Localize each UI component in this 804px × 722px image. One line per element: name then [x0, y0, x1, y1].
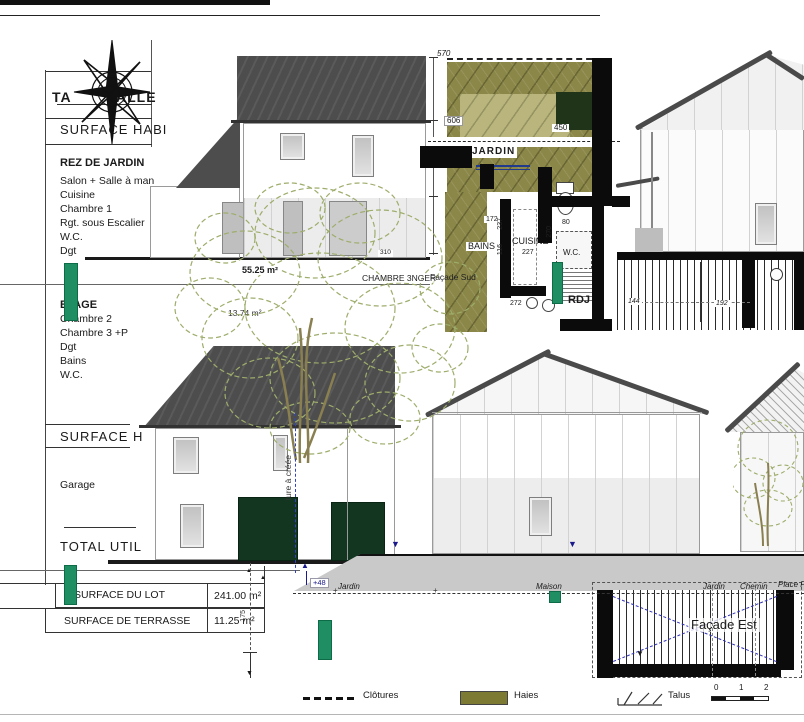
surface-table-row: SURFACE DE TERRASSE 11.25 m² [45, 608, 265, 633]
plan-east-wall [794, 258, 804, 330]
rez-item: Salon + Salle à man [60, 176, 154, 187]
boundary-dashed [712, 588, 713, 676]
legend-talus-icon [616, 689, 664, 707]
dim-dashed-vertical [250, 563, 251, 655]
dim-450: 450 [552, 124, 569, 132]
surface-table-row: SURFACE DU LOT 241.00 m² [55, 583, 265, 608]
facade-est-arrow-line [640, 598, 641, 654]
area-main-label: 55.25 m² [240, 266, 280, 275]
plan-stair-marker [552, 262, 563, 304]
top-rule [0, 15, 600, 16]
section-label-jardin: Jardin [338, 583, 360, 591]
house3-window [529, 497, 552, 536]
door-swing-circle [770, 268, 783, 281]
plan-wall [560, 319, 612, 331]
section-label-chemin: Chemin [740, 583, 768, 591]
legend-clotures-swatch [303, 697, 357, 700]
etage-item: Bains [60, 356, 86, 367]
rez-item: Chambre 1 [60, 204, 112, 215]
dim-227: 227 [520, 249, 536, 256]
dim-80: 80 [560, 219, 572, 226]
garage-label: Garage [60, 480, 95, 491]
dim-arrow: ▲ [246, 568, 252, 574]
legend-haies-label: Haies [514, 691, 538, 701]
marker-bar [64, 565, 77, 605]
plan-wall [552, 196, 592, 207]
plan-wc-label: W.C. [563, 249, 580, 257]
plan-east-wall-top [617, 252, 804, 260]
level-mark-icon: ▼ [391, 540, 400, 549]
section-tick: + [333, 587, 338, 595]
tree-large [150, 178, 485, 468]
total-utile-heading: TOTAL UTIL [60, 540, 142, 554]
house2-window-low [180, 504, 204, 548]
dim-237: 237 [497, 218, 504, 230]
plan-east-dashed [640, 302, 750, 303]
rule [45, 424, 130, 425]
gable-ne-wall [640, 128, 804, 252]
plan-jardin-label: JARDIN [470, 147, 517, 158]
ground-line-lower-thin [0, 570, 300, 571]
house1-roof [237, 56, 426, 122]
facade-est-arrow: ▼ [636, 650, 644, 658]
boundary-dashed [755, 588, 756, 676]
rule [0, 583, 55, 584]
panel-left-border [45, 70, 46, 585]
scale-tick-0: 0 [714, 684, 718, 692]
rule [64, 527, 136, 528]
rez-item: Rgt. sous Escalier [60, 218, 145, 229]
plan-wall [420, 146, 472, 168]
surface-lot-label: SURFACE DU LOT [74, 590, 165, 601]
rule [45, 447, 130, 448]
facade-est-label: Façade Est [688, 618, 760, 632]
plan-wall [612, 196, 630, 207]
dim-foot-arrow: ▼ [246, 670, 253, 677]
architectural-drawing-sheet: TA ALLE SURFACE HABI REZ DE JARDIN Salon… [0, 0, 804, 722]
gable-ne-wall-panel [635, 228, 663, 252]
ouverture-note: ture à créée [283, 455, 293, 500]
section-label-place: Place Par [778, 581, 804, 589]
plan-wall [510, 286, 546, 296]
dim-272: 272 [508, 300, 524, 307]
scale-tick-2: 2 [764, 684, 768, 692]
rez-de-jardin-heading: REZ DE JARDIN [60, 158, 144, 170]
house1-window [280, 133, 305, 160]
marker-bar [318, 620, 332, 660]
surface-lot-value: 241.00 m² [214, 590, 261, 602]
facade-est-wall [597, 590, 613, 678]
house1-window-tall [352, 135, 374, 177]
legend-clotures-label: Clôtures [363, 691, 398, 701]
etage-item: Chambre 3 +P [60, 328, 128, 339]
compass-rose-icon [66, 40, 158, 153]
etage-item: Dgt [60, 342, 76, 353]
plan-garden-light [460, 94, 570, 140]
tree-small [733, 408, 804, 548]
marker-bar [64, 263, 78, 321]
gable-ne-window [755, 203, 777, 245]
dim-175: 175 [240, 610, 247, 622]
dim-310: 310 [378, 250, 393, 257]
dim-606: 606 [444, 116, 463, 126]
section-tick: + [433, 587, 438, 595]
section-label-jardin2: Jardin [703, 583, 725, 591]
top-black-bar [0, 0, 270, 5]
facade-est-wall [776, 590, 794, 670]
house3-lower-band [433, 478, 699, 553]
dim-arrow: ▲ [260, 575, 266, 581]
legend-haies-swatch [460, 691, 508, 705]
house2-green-door [238, 497, 298, 561]
sink-circle [526, 297, 538, 309]
house2-green-hedge [331, 502, 385, 561]
legend-talus-label: Talus [668, 691, 690, 701]
dim-144: 144 [626, 298, 642, 305]
stair-arrow-line [700, 262, 701, 322]
kitchen-counter-dashed [513, 209, 537, 285]
scale-bar [711, 696, 769, 701]
scale-tick-1: 1 [739, 684, 743, 692]
plan-east-wall [742, 258, 755, 328]
etage-item: W.C. [60, 370, 83, 381]
rez-item: Dgt [60, 246, 76, 257]
ouverture-dashed-line [295, 413, 296, 573]
rez-item: Cuisine [60, 190, 95, 201]
surface-h-heading: SURFACE H [60, 430, 143, 444]
bottom-rule [0, 714, 804, 715]
level-mark-icon: ▼ [568, 540, 577, 549]
plan-bains-label: BAINS [466, 242, 497, 251]
rez-item: W.C. [60, 232, 83, 243]
dim-116: 116 [497, 244, 504, 255]
chambre-label: CHAMBRE 3NGER [362, 274, 436, 283]
level-value: +48 [310, 578, 329, 588]
dim-tick [429, 120, 438, 121]
plan-wall [592, 58, 612, 206]
plan-boundary-dashed [447, 58, 612, 60]
rule [0, 608, 45, 609]
plan-rdj-label: RDJ [568, 295, 590, 307]
surface-terrasse-label: SURFACE DE TERRASSE [64, 615, 190, 627]
level-up-arrow-icon: ▲ [301, 562, 309, 570]
dim-192: 192 [714, 300, 730, 307]
plan-wall [592, 206, 604, 330]
dim-270: 270 [546, 226, 553, 238]
surface-terrasse-value: 11.25 m² [214, 615, 255, 627]
maison-marker [549, 591, 561, 603]
level-line [306, 571, 307, 585]
facade-sud-label: Façade Sud [430, 273, 476, 282]
